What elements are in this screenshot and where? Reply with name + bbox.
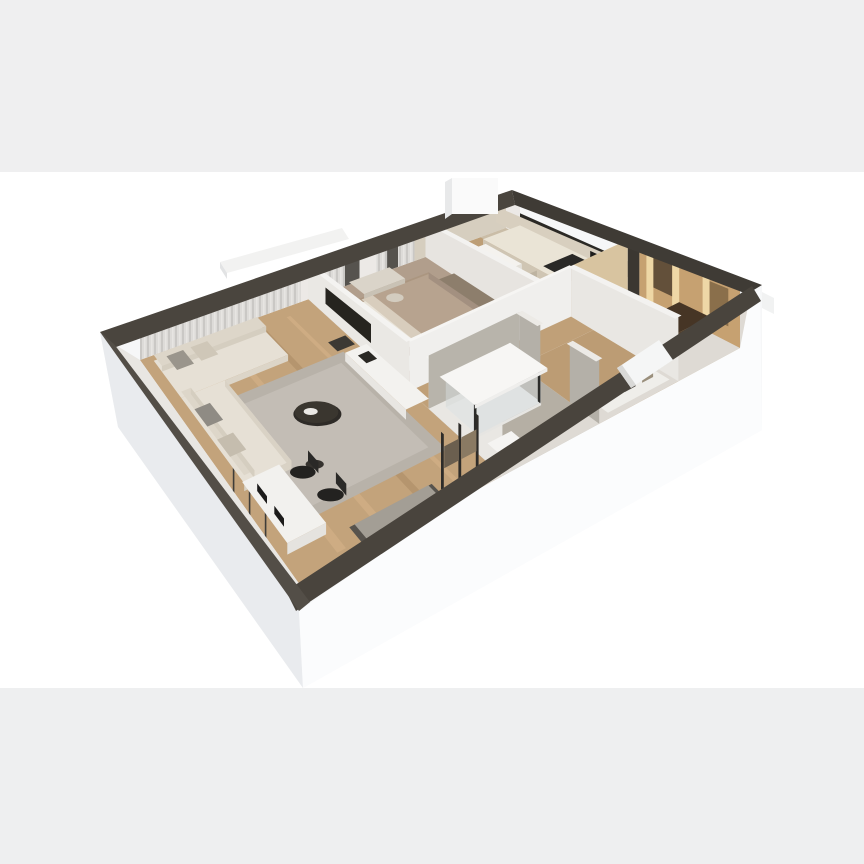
background-bottom-band — [0, 688, 864, 864]
bedroom-chair — [386, 293, 403, 302]
balcony-box-side — [445, 178, 452, 219]
closet-post-1 — [441, 432, 444, 492]
floor-plan-svg — [0, 0, 864, 864]
office-chair-2 — [317, 488, 344, 501]
background-top-band — [0, 0, 864, 172]
office-chair-1 — [290, 466, 316, 479]
floor-plan-figure — [0, 0, 864, 864]
balcony-box-top — [452, 178, 498, 214]
coffee-table-tray — [304, 408, 318, 415]
